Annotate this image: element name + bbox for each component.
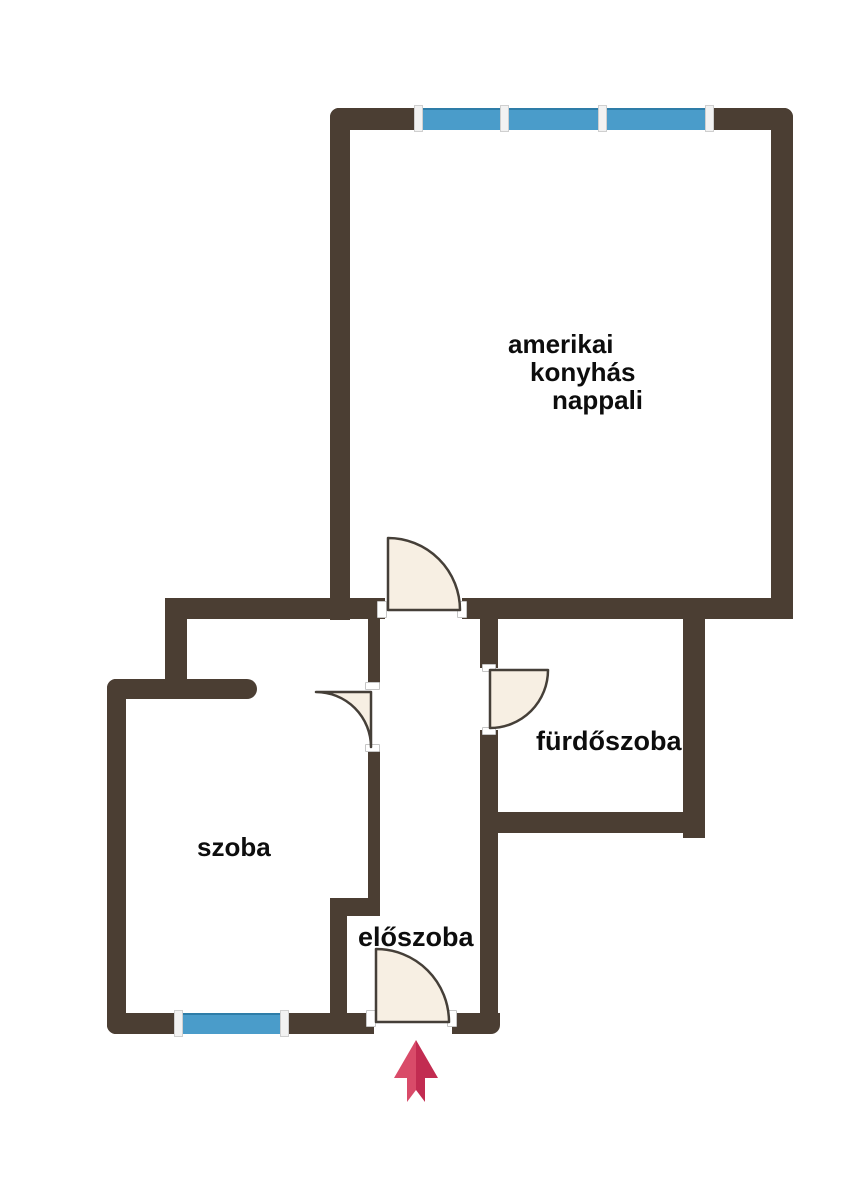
- door-jamb-icon: [482, 727, 496, 735]
- door-jamb-icon: [457, 601, 467, 618]
- wall-bottom-middle: [282, 1013, 374, 1034]
- window-mullion-icon: [598, 105, 607, 132]
- door-jamb-icon: [366, 1010, 376, 1027]
- window-mullion-icon: [414, 105, 423, 132]
- wall-nappali-top-left: [330, 108, 422, 130]
- room-label-nappali-line1: amerikai: [508, 330, 643, 358]
- wall-hall-right-upper: [480, 619, 498, 668]
- wall-bottom-left: [107, 1013, 180, 1034]
- door-and-arrow-overlay: [0, 0, 860, 1180]
- room-label-nappali: amerikai konyhás nappali: [508, 330, 643, 414]
- wall-main-horizontal-left: [165, 598, 385, 619]
- room-label-szoba: szoba: [197, 832, 271, 863]
- window-nappali-icon: [418, 108, 710, 130]
- door-jamb-icon: [365, 682, 380, 690]
- door-jamb-icon: [447, 1010, 457, 1027]
- window-mullion-icon: [500, 105, 509, 132]
- window-szoba-icon: [180, 1013, 282, 1034]
- wall-nappali-left: [330, 108, 350, 620]
- floor-plan: amerikai konyhás nappali fürdőszoba szob…: [0, 0, 860, 1180]
- entrance-arrow-icon: [394, 1040, 438, 1102]
- door-swing-nappali-icon: [388, 538, 460, 610]
- wall-nappali-right: [771, 108, 793, 619]
- door-jamb-icon: [482, 664, 496, 672]
- wall-hall-right-lower: [480, 730, 498, 1013]
- door-swing-entrance-icon: [376, 949, 449, 1022]
- wall-main-horizontal-right: [462, 598, 793, 619]
- door-jamb-icon: [377, 601, 387, 618]
- wall-hall-left-lower: [368, 750, 380, 913]
- wall-bottom-right: [452, 1013, 500, 1034]
- wall-szoba-left: [107, 679, 126, 1034]
- window-mullion-icon: [705, 105, 714, 132]
- window-mullion-icon: [174, 1010, 183, 1037]
- door-jamb-icon: [365, 744, 380, 752]
- room-label-furdoszoba: fürdőszoba: [536, 726, 682, 757]
- window-mullion-icon: [280, 1010, 289, 1037]
- wall-bathroom-bottom: [480, 812, 705, 833]
- door-swing-furdoszoba-icon: [490, 670, 548, 728]
- room-label-nappali-line2: konyhás: [530, 358, 643, 386]
- wall-bathroom-right: [683, 619, 705, 838]
- wall-hall-left-upper: [368, 619, 380, 687]
- door-swing-szoba-icon: [316, 692, 371, 747]
- wall-szoba-top-stub: [107, 679, 257, 699]
- room-label-nappali-line3: nappali: [552, 386, 643, 414]
- room-label-eloszoba: előszoba: [358, 922, 474, 953]
